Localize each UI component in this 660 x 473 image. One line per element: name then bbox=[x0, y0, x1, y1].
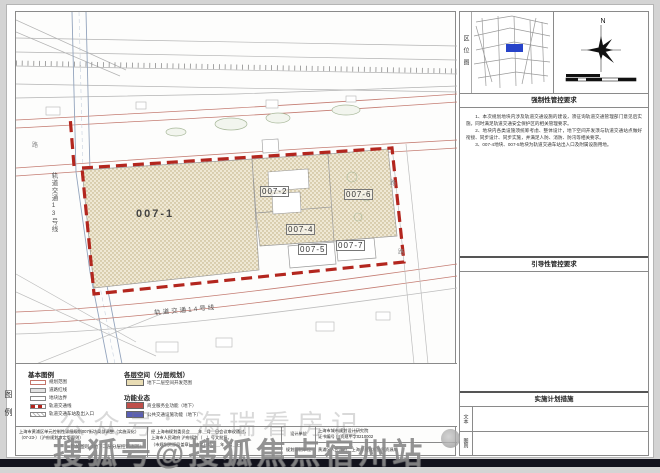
section-guiding-content bbox=[460, 272, 648, 393]
mandatory-paragraph: 3、007-4地块、007-5地块为轨道交通车站出入口及附属设施用地。 bbox=[466, 141, 642, 148]
impl-row-value bbox=[473, 407, 648, 431]
mandatory-paragraph: 2、地块内各类设施须统筹考虑、整体设计，地下空间开发须与轨道交通站点做好衔接、同… bbox=[466, 127, 642, 141]
swatch-parcel-boundary bbox=[30, 396, 46, 401]
location-map-streets bbox=[472, 12, 552, 92]
section-title-guiding: 引导性管控要求 bbox=[460, 258, 648, 272]
impl-row-label: 图则 bbox=[463, 438, 470, 448]
section-implementation-table: 文本 图则 bbox=[460, 407, 648, 455]
legend-basic-title: 基本图例 bbox=[28, 369, 54, 379]
bottom-road-line14 bbox=[16, 264, 457, 334]
road-name-fragment: 路 bbox=[390, 178, 396, 187]
base-map-drawing bbox=[16, 12, 457, 364]
watermark-sohu: 搜狐号@搜狐焦点宿州站 bbox=[53, 429, 426, 473]
parcel-label-007-5: 007-5 bbox=[298, 244, 327, 255]
location-map-label: 区位图 bbox=[461, 35, 470, 71]
swatch-rail-line bbox=[30, 404, 46, 409]
legend-layers-title: 各层空间（分层规划） bbox=[124, 369, 189, 379]
section-mandatory-content: 1、本次规划地块内涉及轨道交通设施的建设，须征询轨道交通管理部门意见后实施，同时… bbox=[460, 108, 648, 258]
map-canvas: 007-1 007-2 007-4 007-5 007-7 007-6 轨道交通… bbox=[16, 12, 457, 364]
parcel-label-007-1: 007-1 bbox=[136, 208, 174, 220]
legend-item: 道路红线 bbox=[30, 387, 67, 393]
greenery bbox=[166, 105, 360, 136]
rail-line-13-label: 轨道交通13号线 bbox=[48, 172, 58, 233]
swatch-rail-station bbox=[30, 412, 46, 417]
scale-bar bbox=[566, 74, 636, 81]
swatch-underground-scope bbox=[126, 379, 144, 386]
legend-side-label: 图例 bbox=[3, 390, 14, 426]
swatch-road-redline bbox=[30, 388, 46, 393]
legend-item: 地块边界 bbox=[30, 395, 67, 401]
plan-sheet: 007-1 007-2 007-4 007-5 007-7 007-6 轨道交通… bbox=[6, 4, 654, 458]
site-boundary-spur bbox=[70, 116, 74, 166]
location-map-box: 区位图 bbox=[460, 12, 554, 93]
sidebar-top: 区位图 bbox=[460, 12, 648, 94]
stamp-circle bbox=[441, 429, 460, 448]
compass-box: N bbox=[554, 12, 648, 93]
implementation-row: 文本 bbox=[460, 407, 648, 432]
location-map bbox=[472, 12, 553, 93]
legend-item: 地下二层空间开发范围 bbox=[126, 379, 192, 386]
site-highlight bbox=[506, 44, 523, 52]
swatch-plan-boundary bbox=[30, 380, 46, 385]
section-title-implementation: 实施计划措施 bbox=[460, 393, 648, 407]
legend-item: 规划范围 bbox=[30, 379, 67, 385]
section-title-mandatory: 强制性管控要求 bbox=[460, 94, 648, 108]
parcel-label-007-4: 007-4 bbox=[286, 224, 315, 235]
sidebar: 区位图 bbox=[459, 11, 649, 456]
top-roads bbox=[16, 20, 457, 98]
parcel-label-007-6: 007-6 bbox=[344, 189, 373, 200]
impl-row-label: 文本 bbox=[463, 414, 470, 424]
parcel-label-007-7: 007-7 bbox=[336, 240, 365, 251]
road-name-fragment: 路 bbox=[398, 247, 404, 256]
legend-functions-title: 功能业态 bbox=[124, 392, 150, 402]
north-label: N bbox=[600, 18, 605, 25]
implementation-row: 图则 bbox=[460, 432, 648, 456]
compass-rose: N bbox=[554, 12, 648, 94]
parcel-label-007-2: 007-2 bbox=[260, 186, 289, 197]
mandatory-paragraph: 1、本次规划地块内涉及轨道交通设施的建设，须征询轨道交通管理部门意见后实施，同时… bbox=[466, 113, 642, 127]
impl-row-value bbox=[473, 432, 648, 456]
road-name-fragment: 路 bbox=[32, 140, 38, 149]
compass-petals bbox=[587, 36, 614, 63]
map-block: 007-1 007-2 007-4 007-5 007-7 007-6 轨道交通… bbox=[15, 11, 456, 456]
location-map-strip: 区位图 bbox=[460, 12, 472, 93]
